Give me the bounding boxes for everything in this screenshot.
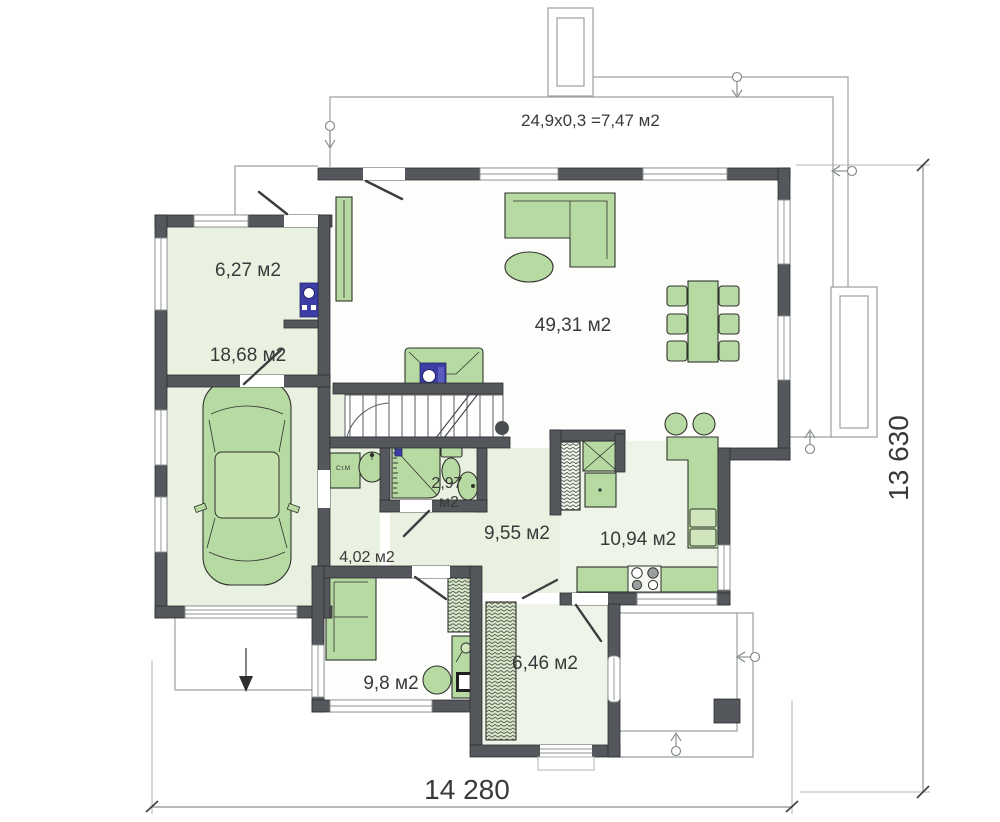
- washer-label: Ст.М: [336, 465, 350, 472]
- living-area-label: 49,31 м2: [535, 315, 611, 336]
- stool: [693, 413, 715, 435]
- pantry-cabinet: [583, 441, 617, 507]
- dimension-right: 13 630: [796, 159, 930, 798]
- dining-table: [688, 281, 718, 362]
- driveway-outline: [175, 618, 312, 692]
- chair: [719, 341, 739, 361]
- car: [194, 380, 299, 585]
- drain-arrow-icon: [737, 652, 760, 662]
- tambour-area-label: 6,27 м2: [215, 260, 281, 281]
- electrical-panel: [300, 283, 318, 317]
- chimney-top: [548, 8, 593, 96]
- window: [778, 316, 790, 380]
- terrace-column: [714, 699, 740, 723]
- dining-table-set: [667, 281, 739, 362]
- dim-height-label: 13 630: [883, 415, 914, 501]
- window: [643, 168, 727, 180]
- chair: [719, 314, 739, 334]
- round-table: [423, 666, 451, 694]
- window: [637, 593, 717, 605]
- coffee-table: [505, 252, 553, 282]
- window: [608, 656, 620, 702]
- cabinet-sofa: [326, 574, 376, 660]
- chimney-right: [831, 287, 877, 437]
- window: [718, 545, 730, 590]
- stairs-floor: [345, 395, 503, 437]
- bathroom-area-unit: м2: [439, 494, 459, 511]
- garage-gate: [185, 606, 297, 618]
- stove: [628, 566, 661, 592]
- cabinet-area-label: 9,8 м2: [363, 673, 418, 694]
- shower-drain: [395, 449, 402, 456]
- entry-area-label: 6,46 м2: [512, 653, 578, 674]
- window: [155, 410, 167, 465]
- entrance-door: [538, 745, 594, 770]
- kitchen-sink: [690, 529, 716, 546]
- desk-lamp-icon: [461, 643, 471, 653]
- terrace-outline: [607, 613, 753, 757]
- chair: [667, 286, 687, 306]
- floor-plan-canvas: Ст.М: [0, 0, 1000, 822]
- window: [480, 168, 558, 180]
- kitchen-area-label: 10,94 м2: [600, 529, 676, 550]
- chair: [667, 314, 687, 334]
- dim-width-label: 14 280: [424, 774, 510, 805]
- roof-area-note: 24,9х0,3 =7,47 м2: [521, 111, 660, 130]
- stair-newel: [495, 421, 509, 435]
- kitchen-sink: [690, 509, 716, 527]
- stool: [665, 413, 687, 435]
- laundry-area-label: 4,02 м2: [339, 549, 395, 566]
- drain-arrow-icon: [732, 73, 742, 98]
- chair: [719, 286, 739, 306]
- window: [155, 238, 167, 310]
- drain-arrow-icon: [805, 430, 815, 454]
- window: [330, 700, 432, 712]
- window: [194, 215, 248, 227]
- window: [778, 200, 790, 264]
- window: [312, 645, 324, 697]
- drain-arrow-icon: [325, 122, 335, 149]
- window: [155, 497, 167, 552]
- washing-machine: Ст.М: [330, 453, 360, 488]
- drain-arrow-icon: [832, 166, 857, 176]
- bathroom-area-value: 2,97: [431, 475, 462, 492]
- drain-arrow-icon: [671, 733, 681, 756]
- chair: [667, 341, 687, 361]
- hall-area-label: 9,55 м2: [484, 523, 550, 544]
- door-leaf: [259, 192, 287, 214]
- garage-area-label: 18,68 м2: [210, 345, 286, 366]
